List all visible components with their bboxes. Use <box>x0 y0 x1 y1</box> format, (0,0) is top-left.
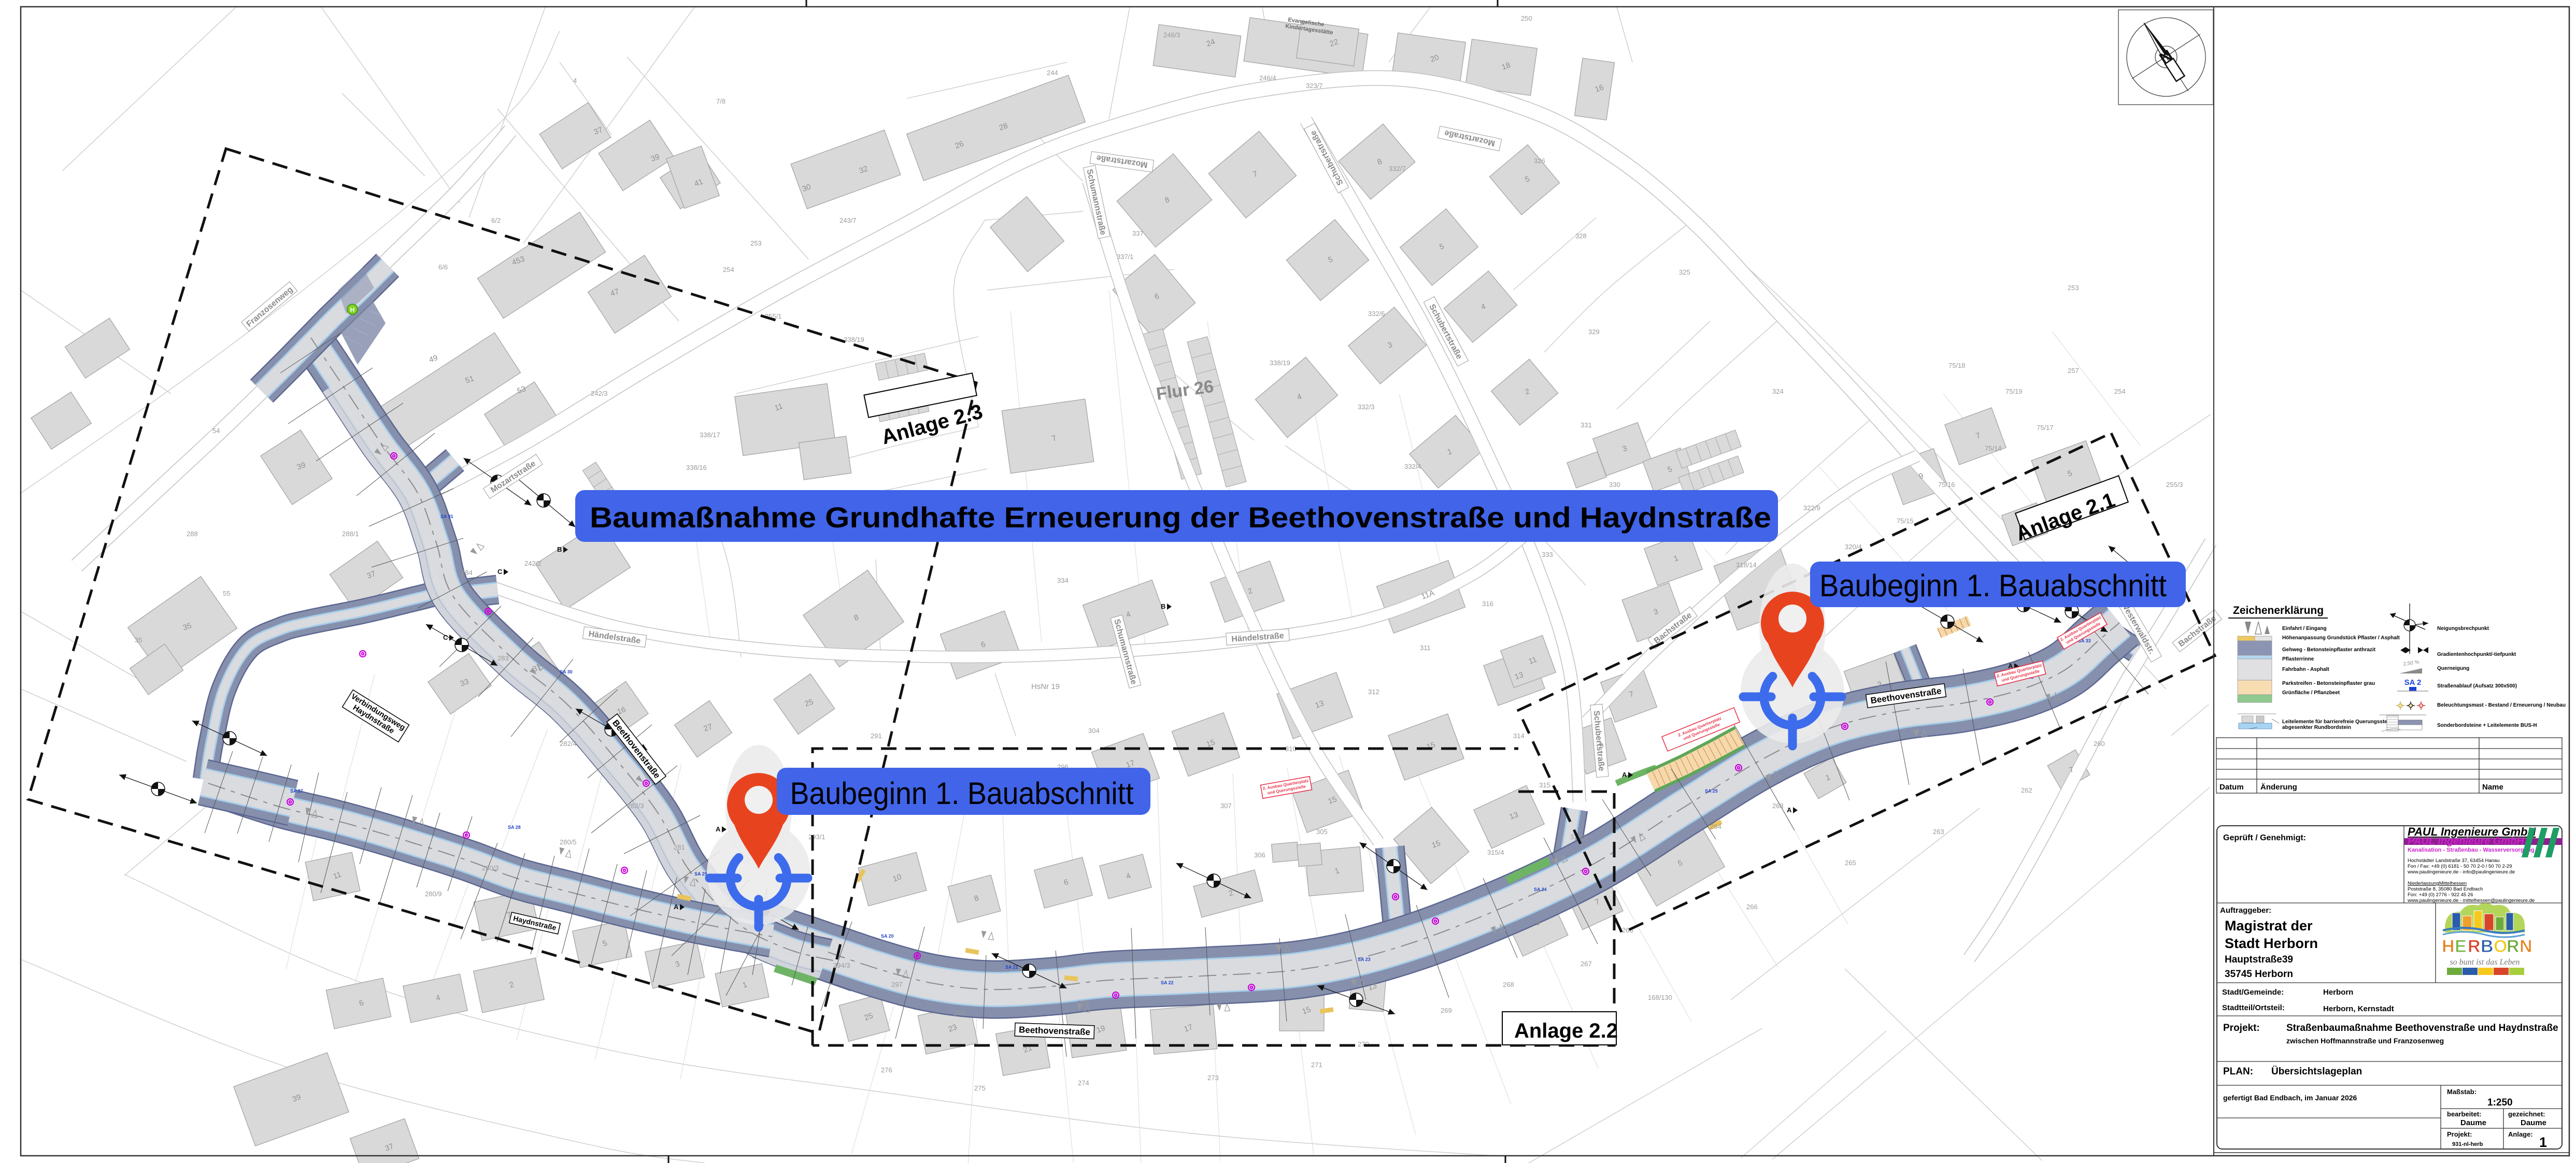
svg-text:246/4: 246/4 <box>1259 74 1276 82</box>
svg-text:Einfahrt / Eingang: Einfahrt / Eingang <box>2282 626 2327 631</box>
svg-text:332/3: 332/3 <box>1358 403 1375 411</box>
svg-text:Fon / Fax: +49 (0) 6181 - 50 7: Fon / Fax: +49 (0) 6181 - 50 70 2-0 / 50… <box>2408 864 2512 869</box>
svg-text:C: C <box>497 568 503 576</box>
svg-text:Hochstädter Landstraße 37, 634: Hochstädter Landstraße 37, 63454 Hanau <box>2408 858 2499 864</box>
svg-text:so bunt ist das Leben: so bunt ist das Leben <box>2450 958 2520 967</box>
svg-text:Name: Name <box>2482 783 2503 792</box>
svg-text:Pflasterrinne: Pflasterrinne <box>2282 656 2314 662</box>
svg-text:SA 28: SA 28 <box>508 825 521 830</box>
svg-text:307: 307 <box>1220 802 1232 810</box>
svg-text:B: B <box>1161 602 1165 610</box>
svg-text:250: 250 <box>1521 15 1532 22</box>
svg-text:253: 253 <box>750 239 762 247</box>
svg-text:291: 291 <box>871 732 882 740</box>
svg-text:298: 298 <box>953 1009 965 1017</box>
svg-text:zwischen Hoffmannstraße und Fr: zwischen Hoffmannstraße und Franzosenweg <box>2286 1037 2444 1045</box>
svg-text:276: 276 <box>881 1066 892 1074</box>
svg-text:Parkstreifen - Betonsteinpflas: Parkstreifen - Betonsteinpflaster grau <box>2282 681 2375 686</box>
svg-text:Straßenbaumaßnahme Beethovenst: Straßenbaumaßnahme Beethovenstraße und H… <box>2286 1023 2558 1033</box>
svg-text:242/3: 242/3 <box>591 390 608 397</box>
svg-text:282/4: 282/4 <box>560 740 577 748</box>
svg-text:H: H <box>2442 937 2455 956</box>
svg-text:SA 22: SA 22 <box>1161 980 1174 985</box>
svg-text:A: A <box>1787 806 1792 814</box>
svg-text:Querneigung: Querneigung <box>2437 666 2469 671</box>
svg-text:332/4: 332/4 <box>1404 463 1421 470</box>
svg-text:Hauptstraße39: Hauptstraße39 <box>2225 954 2293 965</box>
svg-text:SA 23: SA 23 <box>1358 957 1371 962</box>
svg-text:297: 297 <box>891 981 903 988</box>
svg-text:Stadt Herborn: Stadt Herborn <box>2225 936 2318 951</box>
svg-text:264: 264 <box>1710 823 1721 830</box>
svg-text:R: R <box>2507 937 2520 956</box>
svg-text:274: 274 <box>1078 1079 1089 1087</box>
svg-text:331: 331 <box>1581 421 1592 429</box>
svg-text:Baubeginn 1. Bauabschnitt: Baubeginn 1. Bauabschnitt <box>790 776 1134 811</box>
svg-text:75/18: 75/18 <box>1948 362 1966 369</box>
svg-text:304: 304 <box>1088 727 1100 735</box>
svg-text:SA 30: SA 30 <box>560 669 573 674</box>
svg-text:Straßenablauf (Aufsatz 300x500: Straßenablauf (Aufsatz 300x500) <box>2437 683 2517 689</box>
svg-text:Daume: Daume <box>2460 1118 2486 1127</box>
svg-text:B: B <box>2481 937 2494 956</box>
svg-text:323/7: 323/7 <box>1306 82 1323 90</box>
svg-text:N: N <box>2520 937 2532 956</box>
svg-text:310: 310 <box>1285 745 1297 753</box>
svg-text:SA 21: SA 21 <box>1005 965 1018 970</box>
svg-text:Datum: Datum <box>2219 783 2244 792</box>
svg-text:6/2: 6/2 <box>491 217 501 224</box>
svg-text:7/8: 7/8 <box>716 97 725 105</box>
svg-text:54: 54 <box>212 427 220 435</box>
svg-text:306: 306 <box>1254 851 1265 859</box>
svg-text:75/17: 75/17 <box>2037 424 2054 432</box>
svg-text:330: 330 <box>1609 481 1620 489</box>
svg-text:O: O <box>2494 937 2507 956</box>
svg-text:PLAN:: PLAN: <box>2223 1066 2253 1077</box>
svg-text:281: 281 <box>674 843 685 851</box>
svg-text:283: 283 <box>497 654 509 662</box>
svg-text:SA 25: SA 25 <box>1705 788 1718 794</box>
svg-text:338/16: 338/16 <box>686 464 707 471</box>
svg-text:338/19: 338/19 <box>844 336 864 343</box>
svg-text:Baubeginn 1. Bauabschnitt: Baubeginn 1. Bauabschnitt <box>1819 568 2167 603</box>
svg-text:312: 312 <box>1368 688 1379 696</box>
svg-text:271: 271 <box>1311 1061 1322 1069</box>
svg-text:931-nl-herb: 931-nl-herb <box>2452 1141 2483 1147</box>
svg-text:SA 2: SA 2 <box>2404 678 2422 687</box>
svg-text:243/7: 243/7 <box>839 217 857 224</box>
svg-text:305: 305 <box>1316 828 1328 836</box>
svg-text:263: 263 <box>1933 828 1944 836</box>
svg-text:75/14: 75/14 <box>1985 444 2002 452</box>
svg-text:267: 267 <box>1581 960 1592 968</box>
svg-text:35: 35 <box>135 636 142 644</box>
svg-text:Geprüft / Genehmigt:: Geprüft / Genehmigt: <box>2223 834 2306 842</box>
svg-text:268: 268 <box>1503 981 1514 988</box>
svg-text:R: R <box>2468 937 2481 956</box>
svg-text:Stadtteil/Ortsteil:: Stadtteil/Ortsteil: <box>2222 1003 2285 1012</box>
svg-text:Projekt:: Projekt: <box>2447 1130 2472 1138</box>
svg-text:328: 328 <box>1575 232 1587 240</box>
svg-text:6/6: 6/6 <box>438 263 448 271</box>
svg-text:280/5: 280/5 <box>560 838 577 846</box>
svg-text:Poststraße 8, 35080 Bad Endbac: Poststraße 8, 35080 Bad Endbach <box>2408 886 2483 892</box>
svg-text:322/9: 322/9 <box>1803 504 1820 512</box>
svg-text:255/3: 255/3 <box>2166 481 2183 489</box>
svg-text:318/14: 318/14 <box>1736 561 1757 569</box>
svg-text:A: A <box>1622 771 1627 779</box>
svg-text:280/9: 280/9 <box>425 890 442 898</box>
svg-text:Beleuchtungsmast - Bestand / E: Beleuchtungsmast - Bestand / Erneuerung … <box>2437 702 2566 708</box>
svg-text:SA 27: SA 27 <box>290 788 303 794</box>
svg-text:NiederlassungMittelhessen: NiederlassungMittelhessen <box>2408 881 2467 886</box>
svg-text:B: B <box>557 545 562 553</box>
svg-text:253: 253 <box>2068 284 2079 292</box>
svg-text:266: 266 <box>1746 903 1758 911</box>
svg-text:Grünfläche / Pflanzbeet: Grünfläche / Pflanzbeet <box>2282 690 2340 696</box>
svg-text:Anlage:: Anlage: <box>2508 1130 2533 1138</box>
svg-text:311: 311 <box>1420 644 1431 652</box>
svg-text:SA 29: SA 29 <box>694 871 707 877</box>
svg-text:263: 263 <box>1772 802 1784 810</box>
svg-text:273: 273 <box>1207 1074 1219 1082</box>
svg-text:275: 275 <box>974 1084 986 1092</box>
svg-text:4: 4 <box>573 77 577 84</box>
svg-text:Gehweg - Betonsteinpflaster an: Gehweg - Betonsteinpflaster anthrazit <box>2282 647 2376 653</box>
svg-text:Maßstab:: Maßstab: <box>2447 1088 2477 1096</box>
svg-text:265: 265 <box>1845 859 1856 867</box>
svg-text:Auftraggeber:: Auftraggeber: <box>2220 906 2271 915</box>
svg-text:www.paulingenieure.de - info@p: www.paulingenieure.de - info@paulingenie… <box>2407 869 2515 875</box>
svg-text:75/16: 75/16 <box>1938 481 1955 489</box>
svg-text:Übersichtslageplan: Übersichtslageplan <box>2271 1066 2362 1077</box>
svg-text:75/19: 75/19 <box>2005 387 2023 395</box>
svg-text:332/7: 332/7 <box>1389 165 1406 173</box>
svg-text:282/3: 282/3 <box>627 802 644 810</box>
svg-text:337/1: 337/1 <box>1117 253 1134 261</box>
svg-text:Höhenanpassung Grundstück Pfla: Höhenanpassung Grundstück Pflaster / Asp… <box>2282 635 2400 641</box>
svg-text:H: H <box>350 306 355 313</box>
svg-text:337: 337 <box>1132 229 1144 237</box>
svg-text:334: 334 <box>1057 577 1069 584</box>
svg-text:Zeichenerklärung: Zeichenerklärung <box>2233 605 2324 616</box>
svg-text:326: 326 <box>1534 157 1545 165</box>
svg-text:338/17: 338/17 <box>700 431 720 439</box>
svg-text:A: A <box>716 825 721 833</box>
svg-text:Baumaßnahme Grundhafte Erneuer: Baumaßnahme Grundhafte Erneuerung der Be… <box>590 501 1771 534</box>
svg-text:Stadt/Gemeinde:: Stadt/Gemeinde: <box>2222 988 2284 997</box>
svg-text:257: 257 <box>2068 367 2079 375</box>
svg-text:55: 55 <box>223 590 230 597</box>
svg-text:C: C <box>443 634 448 641</box>
svg-text:abgesenkter Rundbordstein: abgesenkter Rundbordstein <box>2282 725 2351 730</box>
svg-text:Änderung: Änderung <box>2260 783 2297 792</box>
svg-text:315: 315 <box>1539 781 1550 789</box>
svg-text:Fahrbahn - Asphalt: Fahrbahn - Asphalt <box>2282 667 2329 672</box>
svg-text:297: 297 <box>1078 999 1089 1007</box>
svg-text:Daume: Daume <box>2521 1118 2546 1127</box>
svg-text:288: 288 <box>187 530 198 538</box>
svg-text:333: 333 <box>1542 551 1553 558</box>
svg-text:Projekt:: Projekt: <box>2223 1023 2260 1033</box>
svg-text:329: 329 <box>1588 328 1600 336</box>
svg-text:Gradientenhochpunkt/-tiefpunkt: Gradientenhochpunkt/-tiefpunkt <box>2437 652 2516 657</box>
svg-text:294/3: 294/3 <box>833 961 850 969</box>
svg-text:260: 260 <box>2094 740 2105 748</box>
svg-text:E: E <box>2455 937 2467 956</box>
svg-text:gezeichnet:: gezeichnet: <box>2508 1110 2545 1118</box>
svg-text:246/3: 246/3 <box>1163 31 1180 39</box>
svg-text:269: 269 <box>1441 1007 1452 1014</box>
svg-text:SA 31: SA 31 <box>440 514 453 519</box>
svg-text:1:250: 1:250 <box>2487 1097 2513 1108</box>
svg-text:168/130: 168/130 <box>1648 994 1672 1001</box>
svg-text:SA 20: SA 20 <box>881 934 894 939</box>
svg-text:Herborn: Herborn <box>2323 988 2353 997</box>
svg-text:324: 324 <box>1772 387 1784 395</box>
svg-text:75/15: 75/15 <box>1897 517 1914 525</box>
svg-text:SA 24: SA 24 <box>1534 887 1547 892</box>
svg-text:Magistrat der: Magistrat der <box>2225 918 2313 934</box>
svg-text:315/4: 315/4 <box>1487 849 1504 856</box>
svg-text:HsNr 19: HsNr 19 <box>1031 682 1060 691</box>
svg-text:316: 316 <box>1482 600 1493 608</box>
svg-text:332/6: 332/6 <box>1368 310 1385 318</box>
svg-text:www.paulingenieure.de - mittel: www.paulingenieure.de - mittelhessen@pau… <box>2407 898 2535 903</box>
svg-text:gefertigt Bad Endbach, im Janu: gefertigt Bad Endbach, im Januar 2026 <box>2223 1094 2357 1102</box>
svg-text:254: 254 <box>2114 387 2126 395</box>
svg-text:bearbeitet:: bearbeitet: <box>2447 1110 2481 1118</box>
svg-text:Fon: +49 (0) 2776 - 922 45 26: Fon: +49 (0) 2776 - 922 45 26 <box>2408 892 2473 898</box>
svg-text:Herborn, Kernstadt: Herborn, Kernstadt <box>2323 1004 2394 1013</box>
svg-text:Anlage 2.2: Anlage 2.2 <box>1514 1020 1618 1042</box>
svg-text:1: 1 <box>2539 1135 2547 1150</box>
svg-text:262: 262 <box>2021 786 2032 794</box>
svg-text:284: 284 <box>461 569 473 577</box>
svg-text:35745 Herborn: 35745 Herborn <box>2225 969 2293 980</box>
svg-text:254: 254 <box>723 266 734 274</box>
svg-text:244: 244 <box>1047 69 1058 77</box>
svg-text:Leitelemente für barrierefreie: Leitelemente für barrierefreie Querungss… <box>2282 719 2396 725</box>
svg-text:314: 314 <box>1513 732 1525 740</box>
svg-text:288/1: 288/1 <box>342 530 359 538</box>
svg-text:A: A <box>674 903 679 911</box>
svg-text:280/3: 280/3 <box>482 864 499 872</box>
svg-text:338/19: 338/19 <box>1270 359 1290 367</box>
svg-text:Kanalisation - Straßenbau - Wa: Kanalisation - Straßenbau - Wasserversor… <box>2408 847 2535 853</box>
svg-text:293/1: 293/1 <box>808 833 826 841</box>
svg-text:PAUL Ingenieure GmbH: PAUL Ingenieure GmbH <box>2408 836 2524 847</box>
svg-text:Neigungsbrechpunkt: Neigungsbrechpunkt <box>2437 626 2489 631</box>
svg-text:242/2: 242/2 <box>524 559 542 567</box>
svg-text:325: 325 <box>1679 268 1690 276</box>
svg-text:Sonderbordsteine + Leitelement: Sonderbordsteine + Leitelemente BUS-H <box>2437 723 2537 728</box>
